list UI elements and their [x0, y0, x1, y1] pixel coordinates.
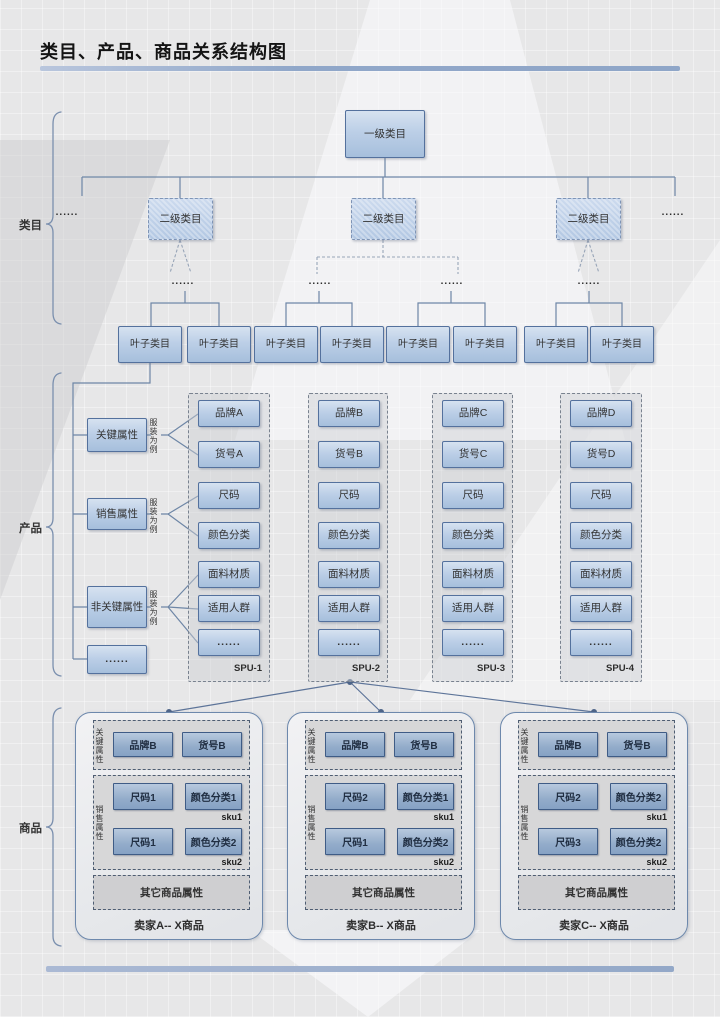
- attr-group-sales: 销售属性: [87, 498, 147, 530]
- node-level2-category: 二级类目: [556, 198, 621, 240]
- other-attrs-panel: 其它商品属性: [305, 875, 462, 910]
- spu-attr-box: 颜色分类: [318, 522, 380, 549]
- node-leaf-category: 叶子类目: [118, 326, 182, 363]
- spu-attr-box: 货号D: [570, 441, 632, 468]
- spu-attr-box: 货号A: [198, 441, 260, 468]
- ellipsis-more-subcategory: ......: [160, 276, 206, 287]
- sku-tag: sku2: [610, 857, 667, 867]
- node-leaf-category: 叶子类目: [187, 326, 251, 363]
- node-root-category: 一级类目: [345, 110, 425, 158]
- spu-label: SPU-4: [560, 663, 634, 674]
- seller-card-label: 卖家B-- X商品: [287, 917, 475, 933]
- page-title: 类目、产品、商品关系结构图: [40, 38, 287, 64]
- sales-attrs-vertical-label: 销售属性: [95, 780, 103, 865]
- sku-itemno-box: 货号B: [182, 732, 242, 757]
- spu-attr-box: 面料材质: [442, 561, 504, 588]
- sku-color-box: 颜色分类2: [610, 783, 667, 810]
- spu-to-seller-fan: [166, 679, 597, 715]
- node-level2-category: 二级类目: [351, 198, 416, 240]
- seller-card-label: 卖家A-- X商品: [75, 917, 263, 933]
- sku-itemno-box: 货号B: [607, 732, 667, 757]
- brace-category: [46, 112, 61, 324]
- attr-group-nonkey: 非关键属性: [87, 586, 147, 628]
- key-attrs-vertical-label: 关键属性: [520, 723, 528, 768]
- node-leaf-category: 叶子类目: [524, 326, 588, 363]
- ellipsis-more-subcategory: ......: [429, 276, 475, 287]
- node-leaf-category: 叶子类目: [386, 326, 450, 363]
- spu-attr-box: 颜色分类: [442, 522, 504, 549]
- ellipsis-more-level2: ......: [650, 207, 696, 218]
- sku-size-box: 尺码1: [325, 828, 385, 855]
- spu-attr-box: 货号C: [442, 441, 504, 468]
- other-attrs-panel: 其它商品属性: [518, 875, 675, 910]
- sku-tag: sku1: [185, 812, 242, 822]
- brace-product: [46, 373, 61, 676]
- sku-size-box: 尺码3: [538, 828, 598, 855]
- sku-color-box: 颜色分类2: [185, 828, 242, 855]
- sku-size-box: 尺码1: [113, 783, 173, 810]
- spu-attr-box: 品牌D: [570, 400, 632, 427]
- ellipsis-more-subcategory: ......: [566, 276, 612, 287]
- spu-attr-box: 尺码: [198, 482, 260, 509]
- spu-attr-box: 尺码: [570, 482, 632, 509]
- note-clothing-example: 服装为例: [149, 409, 157, 463]
- diagram-page: 类目、产品、商品关系结构图: [0, 0, 720, 1017]
- spu-attr-box: 颜色分类: [198, 522, 260, 549]
- sku-brand-box: 品牌B: [325, 732, 385, 757]
- sku-brand-box: 品牌B: [538, 732, 598, 757]
- footer-bar: [46, 966, 674, 972]
- spu-attr-box: 品牌C: [442, 400, 504, 427]
- spu-label: SPU-3: [432, 663, 505, 674]
- spu-attr-box: 适用人群: [570, 595, 632, 622]
- spu-attr-box: 面料材质: [570, 561, 632, 588]
- node-leaf-category: 叶子类目: [254, 326, 318, 363]
- seller-card-label: 卖家C-- X商品: [500, 917, 688, 933]
- sales-attrs-vertical-label: 销售属性: [307, 780, 315, 865]
- spu-attr-box: 颜色分类: [570, 522, 632, 549]
- spu-attr-box: 货号B: [318, 441, 380, 468]
- spu-attr-box: 尺码: [318, 482, 380, 509]
- section-braces: [46, 112, 61, 946]
- spu-attr-box: ......: [198, 629, 260, 656]
- sku-tag: sku2: [397, 857, 454, 867]
- spu-attr-box: 品牌A: [198, 400, 260, 427]
- dashed-subtree-lines: [170, 240, 599, 274]
- note-clothing-example: 服装为例: [149, 489, 157, 543]
- node-level2-category: 二级类目: [148, 198, 213, 240]
- spu-attr-box: 适用人群: [198, 595, 260, 622]
- brace-goods: [46, 708, 61, 946]
- node-leaf-category: 叶子类目: [453, 326, 517, 363]
- spu-label: SPU-1: [188, 663, 262, 674]
- sku-itemno-box: 货号B: [394, 732, 454, 757]
- title-underline-bar: [40, 66, 680, 71]
- node-leaf-category: 叶子类目: [590, 326, 654, 363]
- sku-tag: sku1: [397, 812, 454, 822]
- sku-brand-box: 品牌B: [113, 732, 173, 757]
- spu-attr-box: 面料材质: [198, 561, 260, 588]
- spu-attr-box: ......: [570, 629, 632, 656]
- sku-size-box: 尺码1: [113, 828, 173, 855]
- spu-attr-box: ......: [442, 629, 504, 656]
- key-attrs-vertical-label: 关键属性: [307, 723, 315, 768]
- attr-group-ellipsis: ......: [87, 645, 147, 674]
- sku-size-box: 尺码2: [325, 783, 385, 810]
- sku-color-box: 颜色分类1: [397, 783, 454, 810]
- sku-color-box: 颜色分类2: [397, 828, 454, 855]
- spu-attr-box: 适用人群: [318, 595, 380, 622]
- note-clothing-example: 服装为例: [149, 581, 157, 635]
- section-label-product: 产品: [8, 520, 42, 536]
- sku-color-box: 颜色分类2: [610, 828, 667, 855]
- spu-attr-box: 面料材质: [318, 561, 380, 588]
- other-attrs-panel: 其它商品属性: [93, 875, 250, 910]
- spu-attr-box: 尺码: [442, 482, 504, 509]
- spu-label: SPU-2: [308, 663, 380, 674]
- spu-attr-box: 适用人群: [442, 595, 504, 622]
- category-tree-lines: [82, 158, 675, 326]
- attr-group-key: 关键属性: [87, 418, 147, 452]
- sku-tag: sku2: [185, 857, 242, 867]
- node-leaf-category: 叶子类目: [320, 326, 384, 363]
- section-label-category: 类目: [8, 217, 42, 233]
- section-label-goods: 商品: [8, 820, 42, 836]
- spu-attr-box: ......: [318, 629, 380, 656]
- spu-attr-box: 品牌B: [318, 400, 380, 427]
- key-attrs-vertical-label: 关键属性: [95, 723, 103, 768]
- sales-attrs-vertical-label: 销售属性: [520, 780, 528, 865]
- sku-tag: sku1: [610, 812, 667, 822]
- sku-color-box: 颜色分类1: [185, 783, 242, 810]
- ellipsis-more-subcategory: ......: [297, 276, 343, 287]
- ellipsis-more-level2: ......: [44, 207, 90, 218]
- sku-size-box: 尺码2: [538, 783, 598, 810]
